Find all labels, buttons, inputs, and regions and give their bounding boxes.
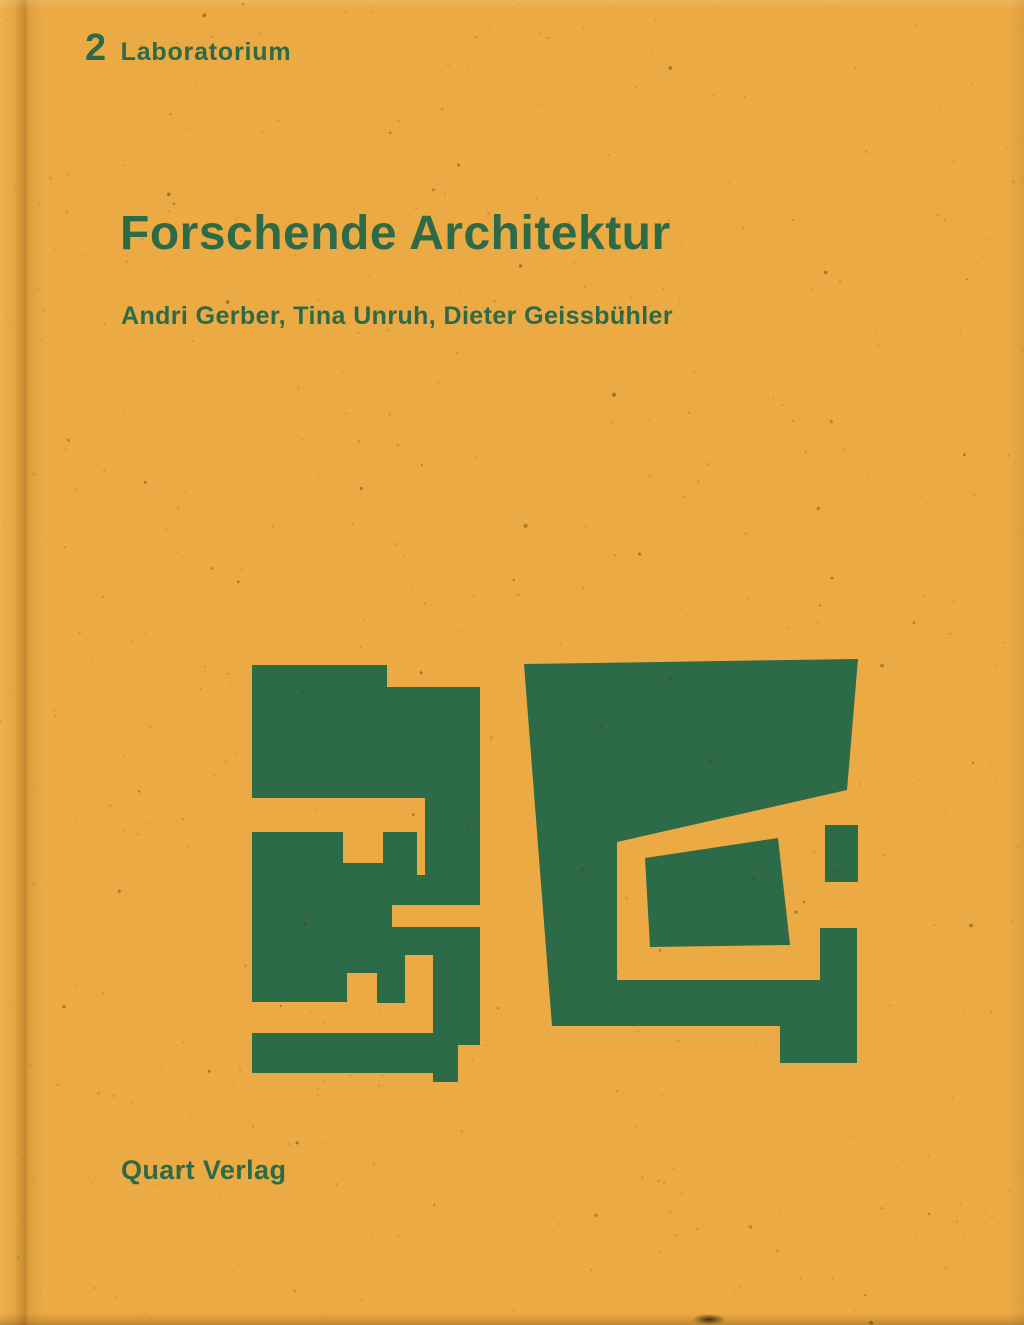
book-title: Forschende Architektur: [120, 210, 671, 258]
series-label: 2Laboratorium: [85, 29, 291, 67]
cover-artwork: [0, 0, 1024, 1325]
series-number: 2: [85, 27, 107, 69]
book-authors: Andri Gerber, Tina Unruh, Dieter Geissbü…: [121, 304, 673, 329]
right-figure-inner-island: [645, 838, 790, 947]
publisher-name: Quart Verlag: [121, 1157, 286, 1184]
series-name: Laboratorium: [121, 38, 292, 66]
left-figure-shape: [252, 665, 480, 1082]
book-cover: 2Laboratorium Forschende Architektur And…: [0, 0, 1024, 1325]
right-figure-detached-rect: [825, 825, 858, 882]
